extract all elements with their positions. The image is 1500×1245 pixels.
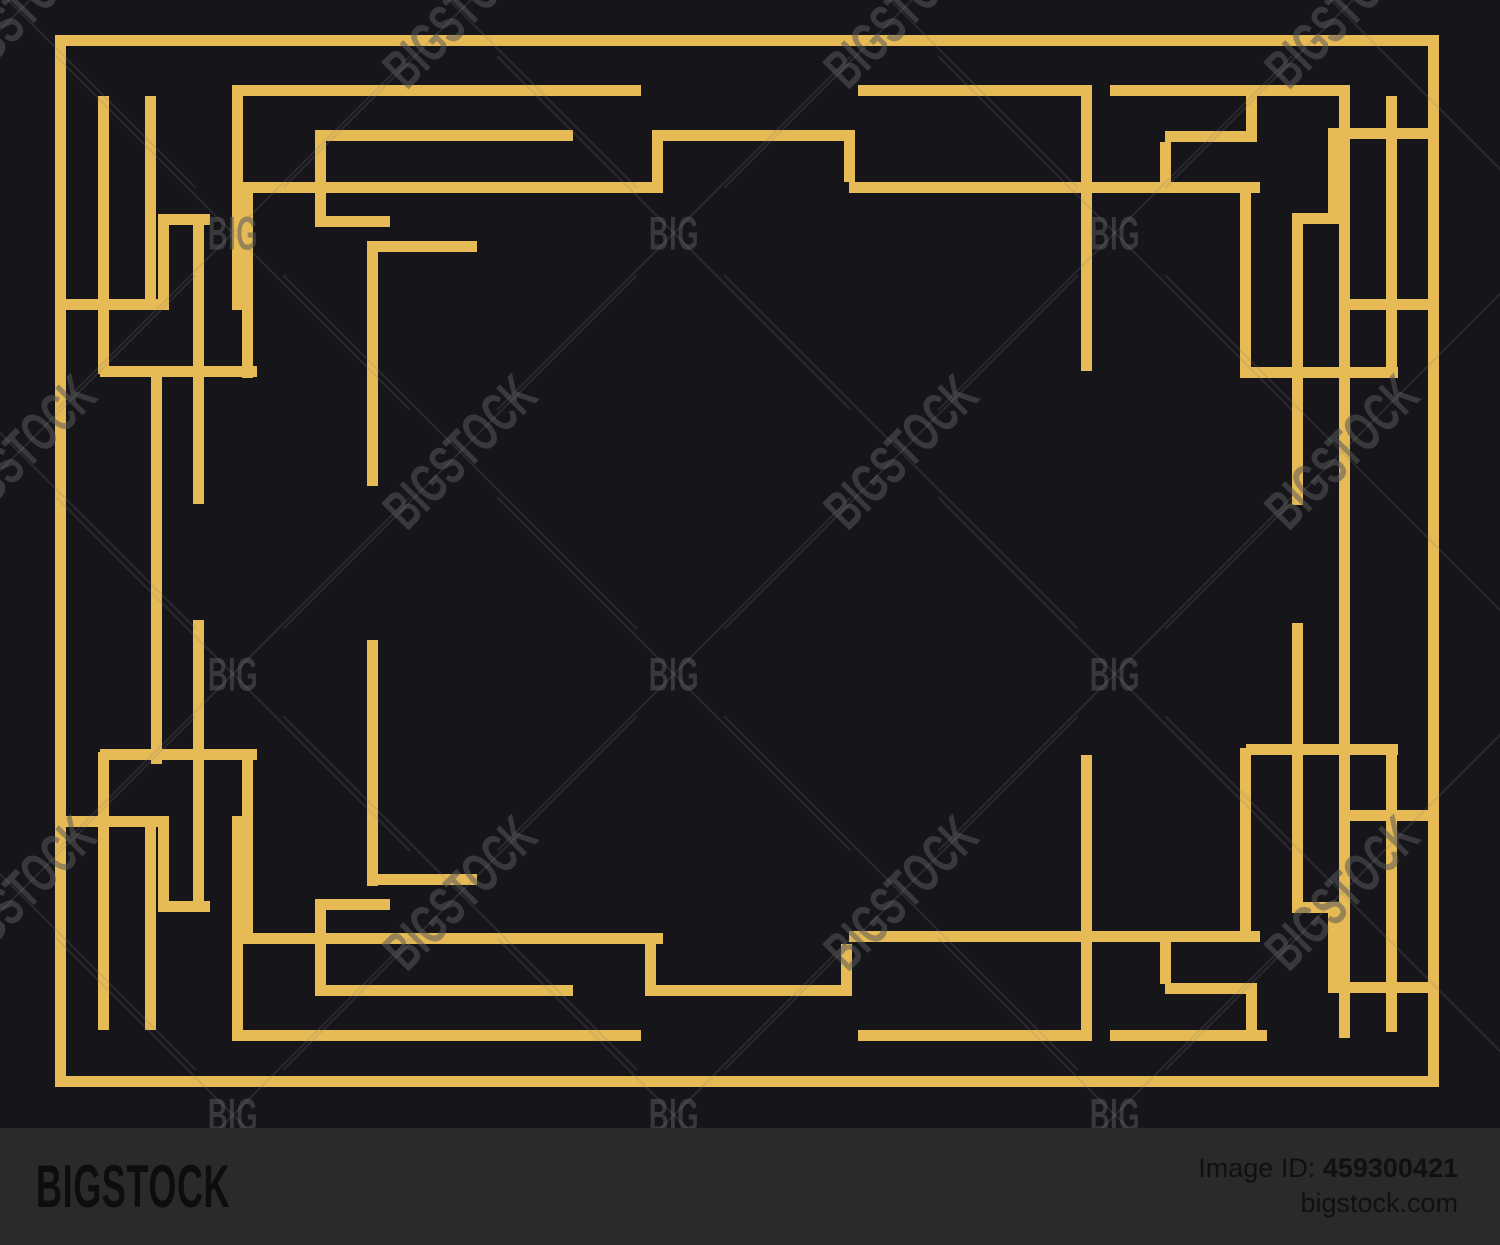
frame-segment — [145, 816, 156, 1030]
frame-segment — [232, 1030, 641, 1041]
footer-meta: Image ID: 459300421 bigstock.com — [1198, 1154, 1458, 1218]
frame-segment — [1328, 128, 1428, 139]
frame-segment — [652, 141, 663, 182]
frame-segment — [232, 816, 243, 1041]
frame-segment — [100, 366, 257, 377]
image-id: Image ID: 459300421 — [1198, 1154, 1458, 1184]
footer-bar: BIGSTOCK Image ID: 459300421 bigstock.co… — [0, 1128, 1500, 1245]
frame-segment — [315, 130, 573, 141]
frame-segment — [1246, 96, 1257, 136]
frame-segment — [193, 620, 204, 904]
frame-segment — [1246, 990, 1257, 1030]
bigstock-logo: BIGSTOCK — [36, 1157, 230, 1217]
frame-segment — [849, 182, 1260, 193]
frame-segment — [98, 752, 109, 1030]
frame-segment — [1160, 939, 1171, 984]
frame-segment — [55, 1076, 1439, 1087]
frame-segment — [1292, 213, 1350, 224]
frame-segment — [1292, 623, 1303, 908]
frame-segment — [193, 214, 204, 504]
frame-segment — [858, 85, 1092, 96]
frame-segment — [242, 182, 663, 193]
frame-segment — [1081, 755, 1092, 1035]
frame-segment — [315, 216, 390, 227]
frame-segment — [1110, 85, 1350, 96]
frame-segment — [242, 753, 253, 944]
frame-segment — [1110, 1030, 1267, 1041]
frame-segment — [849, 931, 1260, 942]
art-deco-frame — [0, 0, 1500, 1128]
frame-segment — [55, 299, 160, 310]
frame-segment — [367, 640, 378, 886]
frame-segment — [1339, 85, 1350, 744]
frame-segment — [1428, 35, 1439, 1087]
frame-segment — [367, 241, 378, 486]
frame-segment — [652, 130, 855, 141]
frame-segment — [55, 816, 160, 827]
site-url: bigstock.com — [1300, 1189, 1458, 1219]
frame-segment — [315, 899, 390, 910]
frame-segment — [367, 874, 477, 885]
image-area: BIGBIGBIGBIGBIGBIGBIGBIGBIGBIGSTOCKBIGST… — [0, 0, 1500, 1128]
frame-segment — [55, 35, 66, 1087]
frame-segment — [232, 85, 641, 96]
frame-segment — [844, 141, 855, 182]
frame-segment — [1292, 213, 1303, 505]
image-id-value: 459300421 — [1323, 1153, 1458, 1183]
frame-segment — [1328, 905, 1339, 993]
frame-segment — [1339, 754, 1350, 1038]
frame-segment — [158, 816, 169, 912]
frame-segment — [1240, 193, 1251, 378]
frame-segment — [1081, 91, 1092, 371]
frame-segment — [1328, 139, 1339, 224]
frame-segment — [1345, 810, 1434, 821]
frame-segment — [1165, 983, 1257, 994]
frame-segment — [242, 933, 663, 944]
frame-segment — [158, 214, 169, 310]
frame-segment — [232, 85, 243, 310]
frame-segment — [858, 1030, 1092, 1041]
frame-segment — [151, 366, 162, 764]
frame-segment — [100, 749, 257, 760]
frame-segment — [645, 944, 656, 985]
frame-segment — [1160, 142, 1171, 187]
frame-segment — [98, 96, 109, 374]
frame-segment — [315, 130, 326, 227]
frame-segment — [645, 985, 852, 996]
frame-segment — [1246, 744, 1398, 755]
frame-segment — [367, 241, 477, 252]
frame-segment — [1246, 367, 1398, 378]
frame-segment — [315, 899, 326, 996]
frame-segment — [841, 944, 852, 985]
frame-segment — [55, 35, 1439, 46]
image-id-label: Image ID: — [1198, 1153, 1315, 1183]
frame-segment — [145, 96, 156, 310]
frame-segment — [1240, 748, 1251, 933]
frame-segment — [1165, 131, 1257, 142]
frame-segment — [242, 182, 253, 378]
frame-segment — [315, 985, 573, 996]
frame-segment — [1345, 299, 1434, 310]
bigstock-preview: BIGBIGBIGBIGBIGBIGBIGBIGBIGBIGSTOCKBIGST… — [0, 0, 1500, 1245]
